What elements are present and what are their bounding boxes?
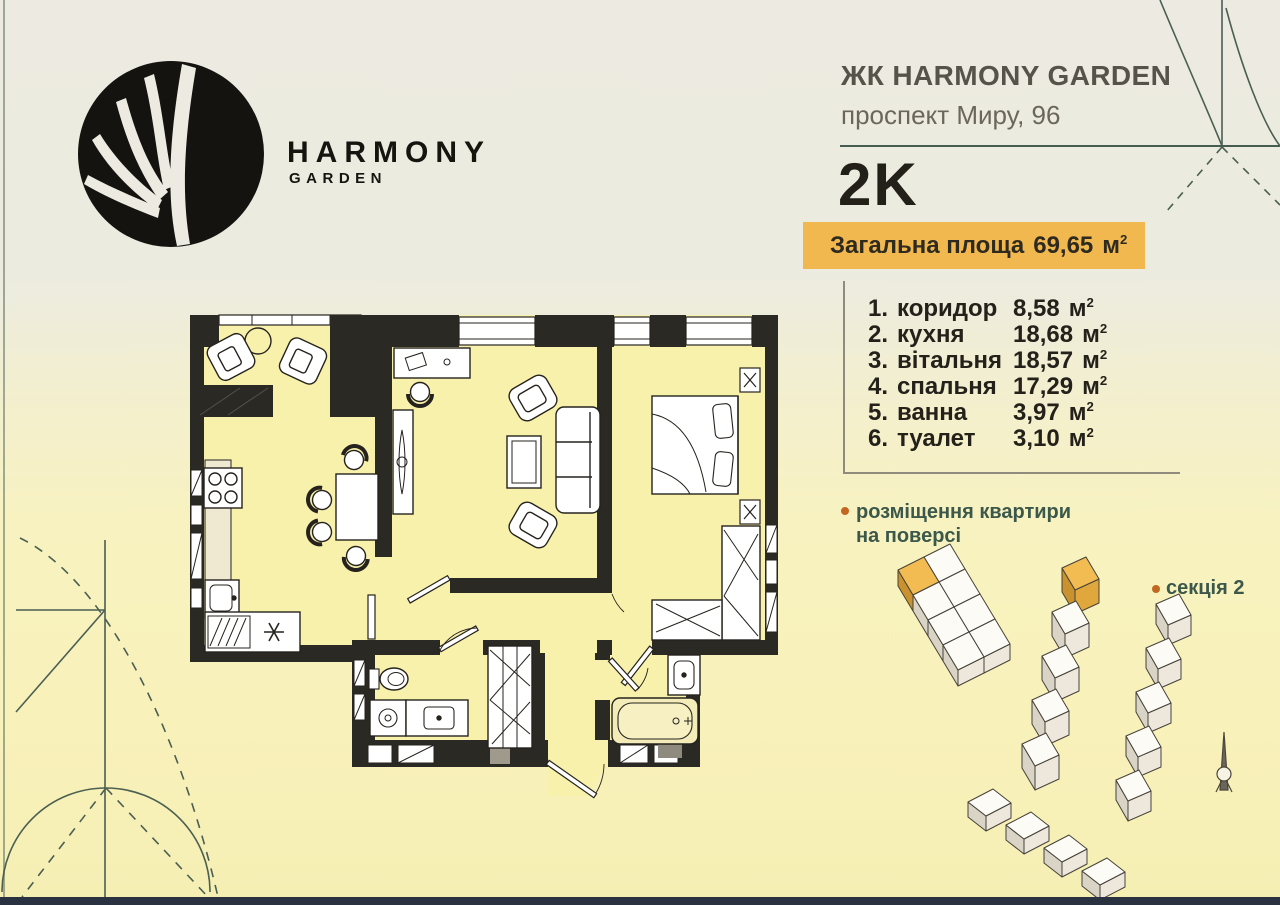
apartment-type: 2K xyxy=(838,150,919,219)
room-list-item: 1.коридор 8,58 м2 xyxy=(868,290,1180,316)
total-area-badge: Загальна площа 69,65 м2 xyxy=(803,222,1145,269)
flyer-page: HARMONY GARDEN ЖК HARMONY GARDEN проспек… xyxy=(0,0,1280,905)
room-list: 1.коридор 8,58 м2 2.кухня 18,68 м2 3.віт… xyxy=(843,281,1180,474)
badge-value: 69,65 xyxy=(1033,232,1093,260)
floor-plan xyxy=(185,298,805,808)
bullet-icon xyxy=(1152,585,1160,593)
room-number: 2. xyxy=(868,322,888,347)
room-number: 1. xyxy=(868,296,888,321)
room-area: 8,58 xyxy=(1013,296,1060,321)
room-area: 3,10 xyxy=(1013,426,1060,451)
site-plan-caption: розміщення квартири на поверсі xyxy=(856,500,1071,548)
north-arrow-icon xyxy=(1216,732,1232,792)
room-area: 17,29 xyxy=(1013,374,1073,399)
logo-subtitle: GARDEN xyxy=(289,170,387,187)
bullet-icon xyxy=(841,507,849,515)
room-number: 6. xyxy=(868,426,888,451)
room-name: коридор xyxy=(897,295,997,322)
section-label: секція 2 xyxy=(1166,577,1244,600)
room-name: спальня xyxy=(897,373,997,400)
footer-bar xyxy=(0,897,1280,905)
logo-title: HARMONY xyxy=(287,136,491,170)
room-name: кухня xyxy=(897,321,965,348)
building-blocks xyxy=(898,544,1191,897)
room-name: вітальня xyxy=(897,347,1002,374)
room-number: 3. xyxy=(868,348,888,373)
room-name: туалет xyxy=(897,425,975,452)
room-area: 3,97 xyxy=(1013,400,1060,425)
badge-label: Загальна площа xyxy=(830,232,1024,260)
room-number: 5. xyxy=(868,400,888,425)
room-area: 18,68 xyxy=(1013,322,1073,347)
badge-unit: м2 xyxy=(1102,232,1127,260)
address: проспект Миру, 96 xyxy=(841,100,1060,131)
deco-geometry-top-right xyxy=(1100,0,1280,230)
room-area: 18,57 xyxy=(1013,348,1073,373)
room-area-unit: м2 xyxy=(1069,420,1094,451)
room-number: 4. xyxy=(868,374,888,399)
room-name: ванна xyxy=(897,399,967,426)
